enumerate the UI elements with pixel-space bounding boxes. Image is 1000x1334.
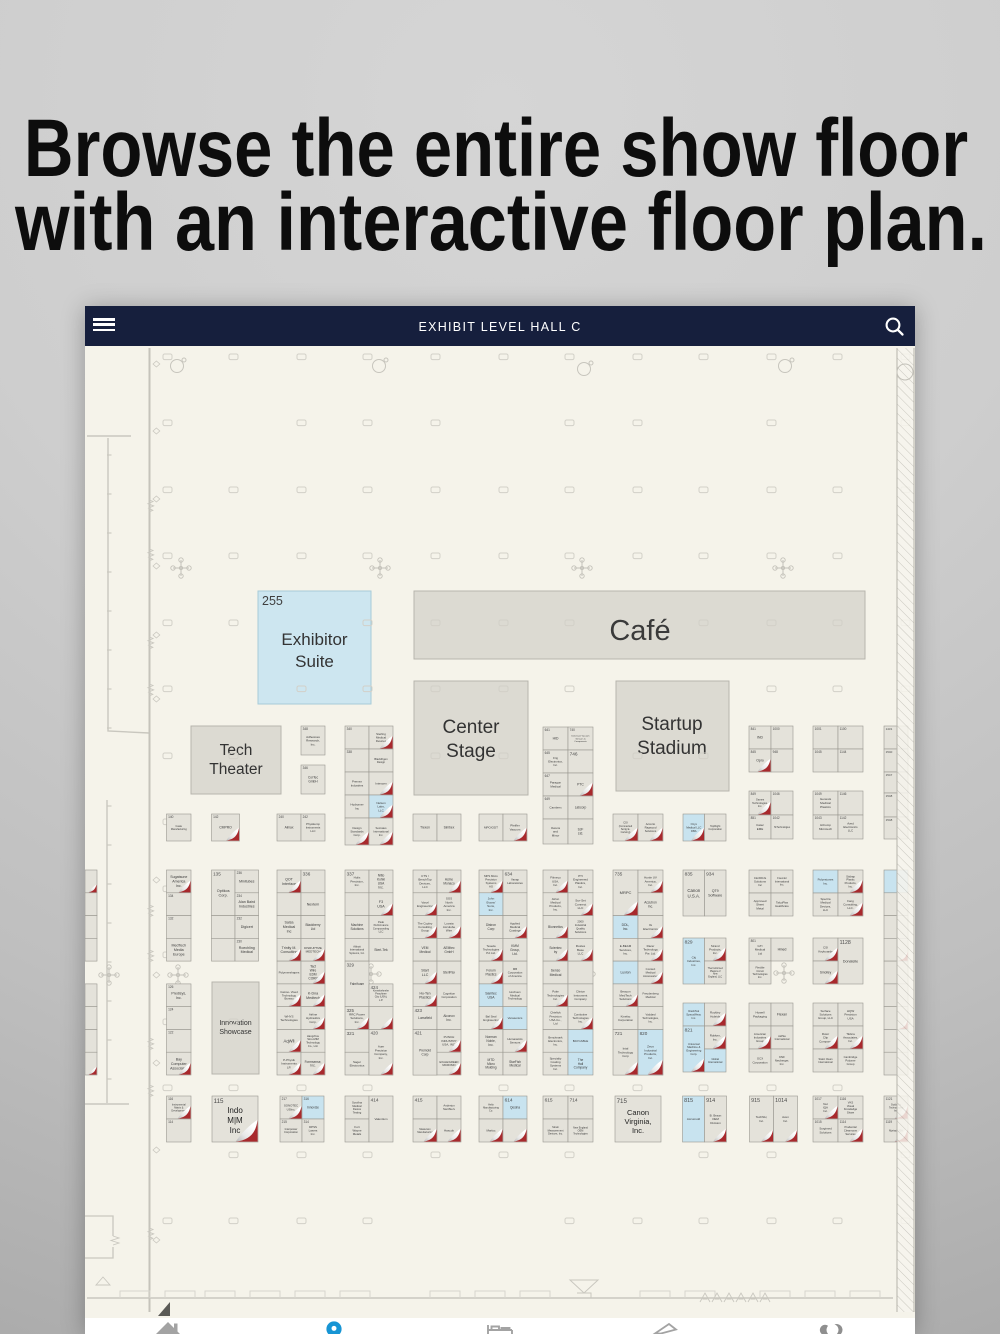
- svg-text:Corporation: Corporation: [752, 1060, 767, 1064]
- svg-text:LP.: LP.: [287, 1065, 291, 1069]
- svg-text:1116: 1116: [840, 1097, 847, 1101]
- svg-text:Keyboards: Keyboards: [818, 949, 833, 953]
- svg-text:New: New: [713, 974, 718, 976]
- svg-text:Verasonics: Verasonics: [508, 1016, 523, 1020]
- svg-text:Inc.: Inc.: [759, 1119, 764, 1123]
- svg-text:614: 614: [505, 1098, 513, 1104]
- svg-text:Almax: Almax: [285, 826, 294, 830]
- svg-text:USA: USA: [488, 996, 496, 1000]
- svg-text:Technologies: Technologies: [573, 1133, 588, 1136]
- svg-text:GmbH: GmbH: [444, 950, 454, 954]
- svg-text:Pvt Ltd.: Pvt Ltd.: [486, 951, 496, 955]
- svg-text:Software: Software: [708, 894, 722, 898]
- svg-text:Pte. Ltd.: Pte. Ltd.: [645, 951, 656, 955]
- svg-text:829: 829: [685, 940, 693, 946]
- svg-text:Cleanroom: Cleanroom: [844, 1128, 858, 1132]
- svg-text:Inc.: Inc.: [379, 1056, 384, 1060]
- svg-text:SterilServ: SterilServ: [443, 1107, 456, 1111]
- svg-text:LLC: LLC: [578, 952, 584, 956]
- svg-text:714: 714: [570, 1098, 578, 1104]
- svg-text:424: 424: [371, 985, 379, 990]
- svg-text:Inc.: Inc.: [713, 951, 718, 955]
- svg-text:DBA: DBA: [691, 829, 697, 833]
- svg-text:Corp: Corp: [622, 1054, 629, 1058]
- svg-text:USA: USA: [847, 1016, 853, 1020]
- svg-text:Corporation: Corporation: [618, 1018, 633, 1022]
- svg-text:Monaco: Monaco: [443, 882, 455, 886]
- svg-text:338: 338: [347, 750, 353, 754]
- svg-text:MPO/ODT: MPO/ODT: [484, 826, 498, 830]
- svg-text:Components: Components: [574, 740, 587, 743]
- svg-text:Fabrifoam: Fabrifoam: [350, 982, 365, 986]
- svg-text:Inc.: Inc.: [553, 1042, 558, 1046]
- svg-text:116: 116: [168, 1097, 173, 1101]
- svg-text:Sino-MIM: Sino-MIM: [307, 1037, 319, 1041]
- svg-text:Roechling: Roechling: [239, 946, 255, 950]
- svg-text:Inc.: Inc.: [553, 908, 558, 912]
- svg-text:Ltd: Ltd: [758, 951, 763, 955]
- svg-text:Solutions: Solutions: [619, 997, 632, 1001]
- svg-text:Inc.: Inc.: [488, 1043, 493, 1047]
- svg-text:Corp.: Corp.: [353, 833, 360, 837]
- svg-text:647: 647: [545, 774, 551, 778]
- svg-text:Inc.: Inc.: [780, 1062, 785, 1066]
- svg-text:Luxlon: Luxlon: [621, 971, 631, 975]
- svg-text:Donatelle: Donatelle: [843, 959, 858, 963]
- svg-text:1015: 1015: [815, 1120, 822, 1124]
- svg-text:Inc.: Inc.: [848, 885, 853, 889]
- svg-text:LLC: LLC: [422, 973, 429, 977]
- svg-text:Share: Share: [847, 1111, 855, 1115]
- svg-text:Packaging: Packaging: [753, 1014, 767, 1018]
- svg-text:Inc: Inc: [287, 930, 292, 934]
- svg-text:1100: 1100: [840, 727, 847, 731]
- svg-text:Indo: Indo: [227, 1106, 243, 1115]
- svg-text:HcTechnologies: HcTechnologies: [774, 827, 791, 829]
- svg-text:Device: Device: [353, 1107, 362, 1111]
- svg-text:MICROMO: MICROMO: [442, 1063, 455, 1067]
- svg-text:Cambrex: Cambrex: [549, 806, 562, 810]
- svg-text:Polymershapes: Polymershapes: [279, 971, 300, 975]
- svg-text:Inc.: Inc.: [758, 804, 762, 808]
- svg-text:Corp.: Corp.: [690, 1052, 697, 1056]
- svg-text:242: 242: [303, 815, 309, 819]
- svg-text:1128: 1128: [840, 940, 851, 946]
- svg-text:Canon: Canon: [627, 1108, 649, 1117]
- svg-text:321: 321: [347, 1031, 355, 1036]
- svg-text:Inc.: Inc.: [623, 952, 628, 956]
- svg-text:Innovation: Innovation: [219, 1020, 251, 1027]
- svg-text:821: 821: [685, 1028, 693, 1034]
- svg-text:IND: IND: [757, 736, 763, 740]
- svg-text:Minitubes: Minitubes: [239, 880, 255, 884]
- svg-text:PTC: PTC: [577, 783, 584, 787]
- svg-text:1121: 1121: [886, 1097, 893, 1101]
- svg-text:Inc.: Inc.: [848, 1039, 853, 1043]
- svg-text:735: 735: [615, 871, 623, 876]
- svg-text:GmbH: GmbH: [308, 780, 318, 784]
- svg-text:Inc.: Inc.: [447, 908, 452, 912]
- svg-text:Accumold: Accumold: [687, 1117, 701, 1121]
- svg-text:Medical: Medical: [510, 1064, 521, 1068]
- svg-text:Solutions: Solutions: [645, 829, 657, 833]
- svg-text:Tech: Tech: [220, 742, 253, 759]
- svg-text:Inc.: Inc.: [176, 884, 182, 888]
- svg-text:Inc.: Inc.: [355, 883, 360, 887]
- svg-text:421: 421: [415, 1031, 423, 1036]
- svg-text:1547: 1547: [886, 773, 893, 777]
- svg-text:Corp: Corp: [422, 1052, 429, 1056]
- svg-text:Vacuum: Vacuum: [510, 827, 521, 831]
- svg-text:LLC: LLC: [378, 808, 384, 812]
- svg-text:Devices, Inc.: Devices, Inc.: [548, 1132, 563, 1136]
- svg-text:Inc.: Inc.: [623, 927, 629, 931]
- svg-text:948: 948: [773, 750, 779, 754]
- svg-text:115: 115: [214, 1098, 224, 1105]
- svg-text:LLC: LLC: [310, 829, 315, 833]
- svg-text:Inc.: Inc.: [648, 883, 653, 887]
- svg-text:325: 325: [347, 1008, 355, 1013]
- svg-text:Services: Services: [845, 1132, 856, 1136]
- svg-text:Inc.: Inc.: [713, 1037, 718, 1041]
- svg-text:Steri-Tek: Steri-Tek: [374, 948, 388, 952]
- svg-text:Center: Center: [442, 717, 500, 738]
- svg-text:America: America: [172, 880, 185, 884]
- svg-text:634: 634: [505, 871, 513, 876]
- svg-text:934: 934: [706, 872, 714, 878]
- svg-text:Dickinson Vacuum: Dickinson Vacuum: [572, 736, 590, 738]
- svg-text:LLC: LLC: [379, 930, 384, 934]
- svg-text:QOT: QOT: [285, 877, 294, 881]
- svg-text:CMPRO: CMPRO: [219, 826, 232, 830]
- svg-text:Inc.: Inc.: [823, 881, 828, 885]
- svg-text:Sugatsune: Sugatsune: [170, 875, 187, 879]
- svg-text:Café: Café: [609, 615, 670, 647]
- svg-text:Media: Media: [174, 948, 184, 952]
- svg-text:International: International: [775, 1037, 790, 1041]
- svg-text:Group, LLC: Group, LLC: [818, 1016, 833, 1020]
- svg-text:1540: 1540: [886, 750, 893, 754]
- svg-text:Interface: Interface: [282, 882, 296, 886]
- svg-text:1049: 1049: [815, 792, 822, 796]
- svg-text:Group: Group: [421, 929, 429, 933]
- svg-text:Sensors &: Sensors &: [575, 737, 586, 740]
- svg-text:915: 915: [751, 1098, 760, 1104]
- svg-text:Laboratories: Laboratories: [507, 881, 523, 885]
- svg-text:340: 340: [347, 727, 353, 731]
- svg-text:Inc.: Inc.: [578, 885, 583, 889]
- svg-text:Lumafield: Lumafield: [418, 1016, 432, 1020]
- svg-text:849: 849: [751, 792, 757, 796]
- svg-text:Medical: Medical: [550, 973, 562, 977]
- svg-text:132: 132: [168, 917, 174, 921]
- svg-text:346: 346: [303, 766, 309, 770]
- svg-text:316: 316: [304, 1097, 310, 1101]
- svg-text:721: 721: [615, 1031, 623, 1036]
- svg-text:Systems, Inc.: Systems, Inc.: [349, 951, 365, 955]
- svg-text:Corporation: Corporation: [441, 995, 456, 999]
- svg-text:Manufacturing: Manufacturing: [171, 828, 187, 831]
- svg-text:Industries: Industries: [351, 783, 364, 787]
- svg-text:Thermoformed: Thermoformed: [708, 967, 724, 970]
- svg-text:715: 715: [617, 1098, 628, 1105]
- svg-text:337: 337: [347, 871, 355, 876]
- svg-text:Digicert: Digicert: [241, 925, 253, 929]
- svg-text:420: 420: [371, 1031, 379, 1036]
- svg-text:Bay: Bay: [176, 1057, 182, 1061]
- svg-text:Company: Company: [574, 997, 587, 1001]
- svg-text:EME: EME: [757, 827, 764, 831]
- svg-text:Inc.: Inc.: [758, 975, 762, 979]
- svg-text:HID: HID: [553, 737, 559, 741]
- svg-text:Technologies: Technologies: [280, 1018, 298, 1022]
- svg-text:Microtech: Microtech: [819, 827, 832, 831]
- svg-text:Technology: Technology: [508, 997, 523, 1001]
- svg-text:Flexan: Flexan: [777, 1013, 787, 1017]
- svg-text:Opro: Opro: [756, 759, 764, 763]
- svg-text:Surofina: Surofina: [352, 1100, 363, 1104]
- svg-text:AG: AG: [489, 885, 493, 889]
- svg-text:Medtech: Medtech: [306, 996, 320, 1000]
- svg-text:Inc.: Inc.: [692, 1016, 697, 1020]
- svg-text:Ltd: Ltd: [553, 1022, 557, 1026]
- svg-text:746: 746: [570, 752, 578, 758]
- svg-text:Inc.: Inc.: [379, 833, 384, 837]
- svg-text:1001: 1001: [815, 727, 822, 731]
- svg-text:Minor: Minor: [552, 833, 560, 837]
- svg-text:Ltd.: Ltd.: [578, 832, 583, 836]
- svg-text:Inc.: Inc.: [553, 883, 558, 887]
- svg-text:Corp: Corp: [488, 927, 495, 931]
- svg-text:236: 236: [237, 871, 243, 875]
- svg-text:MRPC: MRPC: [620, 890, 632, 895]
- svg-text:Inc.: Inc.: [310, 1064, 315, 1068]
- svg-text:International: International: [818, 1060, 833, 1064]
- svg-text:Carving): Carving): [621, 830, 631, 834]
- svg-text:234: 234: [237, 894, 243, 898]
- svg-text:Startup: Startup: [641, 714, 702, 735]
- svg-text:Plastics: Plastics: [820, 805, 831, 809]
- svg-text:K-Dna: K-Dna: [308, 991, 318, 995]
- svg-text:Testing: Testing: [353, 1111, 362, 1115]
- svg-text:1548: 1548: [886, 818, 893, 822]
- svg-text:215: 215: [282, 1120, 288, 1124]
- svg-text:Bureau: Bureau: [284, 997, 293, 1001]
- svg-text:Start: Start: [421, 969, 429, 973]
- svg-text:329: 329: [347, 962, 355, 967]
- svg-text:Inc.: Inc.: [648, 904, 653, 908]
- svg-text:Inc.: Inc.: [780, 883, 784, 887]
- svg-text:414: 414: [371, 1098, 379, 1104]
- svg-text:240: 240: [279, 815, 285, 819]
- svg-text:M|M: M|M: [227, 1116, 243, 1125]
- svg-text:Healthcare: Healthcare: [775, 904, 789, 908]
- svg-text:1045: 1045: [815, 750, 822, 754]
- svg-text:Innovize: Innovize: [307, 1106, 319, 1110]
- svg-text:Corporation: Corporation: [708, 827, 722, 831]
- svg-text:Solutions: Solutions: [350, 927, 364, 931]
- svg-text:Inc.: Inc.: [783, 1119, 788, 1123]
- svg-text:314: 314: [304, 1120, 310, 1124]
- svg-text:114: 114: [168, 1120, 173, 1124]
- svg-text:Virginia,: Virginia,: [625, 1117, 652, 1126]
- svg-text:Medical: Medical: [420, 950, 431, 954]
- svg-text:Bionnetics: Bionnetics: [548, 925, 563, 929]
- svg-text:Simbex: Simbex: [444, 826, 455, 830]
- svg-text:Medical: Medical: [241, 950, 254, 954]
- svg-text:Co., Ltd.: Co., Ltd.: [308, 1044, 318, 1048]
- svg-text:Inc.: Inc.: [578, 1020, 583, 1024]
- svg-text:Inc.: Inc.: [553, 997, 558, 1001]
- svg-text:U.S.A.: U.S.A.: [687, 893, 700, 898]
- svg-text:Technologies,: Technologies,: [642, 1016, 659, 1020]
- svg-text:841: 841: [751, 727, 757, 731]
- svg-text:LLC: LLC: [848, 829, 853, 833]
- svg-text:USA: USA: [377, 905, 385, 909]
- svg-text:Metal: Metal: [756, 906, 764, 910]
- svg-text:1000: 1000: [773, 727, 780, 731]
- svg-text:Smolley: Smolley: [820, 971, 832, 975]
- svg-text:815: 815: [684, 1098, 693, 1104]
- svg-text:835: 835: [685, 872, 693, 878]
- svg-text:820: 820: [640, 1031, 648, 1036]
- svg-text:1017: 1017: [815, 1097, 822, 1101]
- svg-text:Inc.: Inc.: [311, 1132, 316, 1136]
- svg-text:Stage: Stage: [446, 741, 496, 762]
- svg-text:Solutions: Solutions: [575, 930, 587, 934]
- svg-text:801: 801: [751, 939, 757, 943]
- svg-text:Trinity M.: Trinity M.: [282, 946, 297, 950]
- svg-text:LLC: LLC: [578, 906, 584, 910]
- svg-text:740: 740: [570, 728, 576, 732]
- svg-text:Inc.: Inc.: [176, 996, 182, 1000]
- svg-text:Europe: Europe: [173, 953, 185, 957]
- svg-text:Corp.: Corp.: [219, 894, 228, 898]
- svg-text:Salsa: Salsa: [285, 921, 294, 925]
- svg-text:LLC: LLC: [823, 908, 828, 912]
- svg-text:Inc.: Inc.: [489, 908, 494, 912]
- svg-text:Inc.: Inc.: [553, 1067, 558, 1071]
- svg-text:Knowledge: Knowledge: [844, 1107, 858, 1111]
- svg-text:Hascok: Hascok: [444, 1129, 455, 1133]
- svg-text:Medical LLC: Medical LLC: [686, 825, 701, 829]
- svg-text:Inc.: Inc.: [823, 1109, 828, 1113]
- svg-text:Suite: Suite: [295, 652, 334, 671]
- svg-text:230: 230: [237, 939, 243, 943]
- svg-text:Inc.: Inc.: [378, 886, 383, 890]
- svg-text:Inc.: Inc.: [355, 1020, 360, 1024]
- svg-text:MedTech: MedTech: [172, 944, 187, 948]
- svg-text:Engineering: Engineering: [483, 1018, 499, 1022]
- svg-text:1119: 1119: [886, 1120, 893, 1124]
- svg-text:SteriPax: SteriPax: [443, 971, 455, 975]
- svg-text:Qosina: Qosina: [510, 1106, 520, 1110]
- svg-text:Electronics: Electronics: [350, 1064, 365, 1068]
- svg-text:Canon: Canon: [687, 888, 700, 893]
- svg-text:Stadium: Stadium: [637, 738, 707, 759]
- svg-text:QT9: QT9: [712, 889, 719, 893]
- svg-text:Trexon: Trexon: [420, 826, 430, 830]
- svg-text:Wire: Wire: [446, 929, 452, 933]
- svg-text:Alan Baird: Alan Baird: [239, 900, 256, 904]
- svg-text:AqWli: AqWli: [284, 1038, 295, 1043]
- svg-text:645: 645: [545, 751, 551, 755]
- svg-text:England, LLC: England, LLC: [708, 977, 722, 979]
- svg-text:1144: 1144: [840, 750, 847, 754]
- svg-text:649: 649: [545, 797, 551, 801]
- svg-text:Computer: Computer: [171, 1062, 188, 1066]
- svg-text:Industries: Industries: [239, 905, 255, 909]
- svg-text:1142: 1142: [840, 816, 847, 820]
- svg-text:Plastics: Plastics: [419, 996, 431, 1000]
- svg-text:L.P.: L.P.: [379, 999, 383, 1002]
- svg-text:1042: 1042: [773, 816, 780, 820]
- svg-text:Ltd: Ltd: [311, 927, 316, 931]
- svg-text:134: 134: [168, 894, 174, 898]
- svg-text:641: 641: [545, 728, 551, 732]
- svg-text:International: International: [708, 1060, 723, 1064]
- svg-text:423: 423: [415, 1008, 423, 1013]
- svg-text:845: 845: [751, 750, 757, 754]
- svg-text:Optikos: Optikos: [217, 889, 230, 893]
- svg-text:Inc.: Inc.: [691, 963, 696, 967]
- svg-text:Sensors: Sensors: [510, 1041, 521, 1045]
- svg-text:Co.: Co.: [489, 1110, 493, 1113]
- svg-text:126: 126: [168, 985, 174, 989]
- svg-text:Inc.: Inc.: [446, 1018, 451, 1022]
- svg-text:Medical: Medical: [646, 995, 656, 999]
- svg-text:Inc.: Inc.: [553, 763, 558, 767]
- svg-text:Inc: Inc: [230, 1126, 241, 1135]
- svg-text:914: 914: [706, 1098, 715, 1104]
- svg-text:Electronics: Electronics: [643, 927, 658, 931]
- svg-text:135: 135: [213, 871, 221, 876]
- svg-text:255: 255: [262, 594, 283, 608]
- svg-text:Marloc: Marloc: [486, 1129, 496, 1133]
- svg-text:1548: 1548: [886, 794, 893, 798]
- svg-text:Hybrids: Hybrids: [710, 1014, 720, 1018]
- svg-text:Inc.: Inc.: [648, 1056, 653, 1060]
- svg-text:Inc.: Inc.: [311, 742, 316, 746]
- svg-text:615: 615: [545, 1098, 553, 1104]
- svg-text:1146: 1146: [840, 792, 847, 796]
- svg-text:1014: 1014: [775, 1098, 787, 1104]
- svg-text:Showcase: Showcase: [219, 1029, 251, 1036]
- svg-text:Inc: Inc: [758, 883, 762, 887]
- svg-text:1431: 1431: [886, 727, 893, 731]
- svg-text:122: 122: [168, 1031, 174, 1035]
- svg-text:124: 124: [168, 1008, 174, 1012]
- svg-text:Corporation: Corporation: [284, 1130, 299, 1134]
- svg-text:1114: 1114: [840, 1120, 847, 1124]
- svg-text:VKS: VKS: [848, 1100, 854, 1104]
- svg-text:Ltd.: Ltd.: [512, 952, 517, 956]
- svg-text:Molding: Molding: [485, 1066, 496, 1070]
- svg-text:232: 232: [237, 917, 243, 921]
- svg-text:Hined: Hined: [778, 948, 787, 952]
- svg-text:Inc.: Inc.: [648, 1019, 653, 1023]
- svg-text:851: 851: [751, 816, 757, 820]
- svg-text:1043: 1043: [815, 816, 822, 820]
- svg-text:1046: 1046: [773, 792, 780, 796]
- svg-text:Group: Group: [847, 1062, 855, 1066]
- svg-text:142: 142: [213, 815, 219, 819]
- svg-text:BAYCABLE: BAYCABLE: [573, 1039, 589, 1043]
- svg-text:Inc.: Inc.: [632, 1126, 644, 1135]
- svg-text:Metals: Metals: [353, 1132, 362, 1136]
- svg-text:by: by: [554, 950, 558, 954]
- svg-text:MEDTECH: MEDTECH: [306, 950, 321, 954]
